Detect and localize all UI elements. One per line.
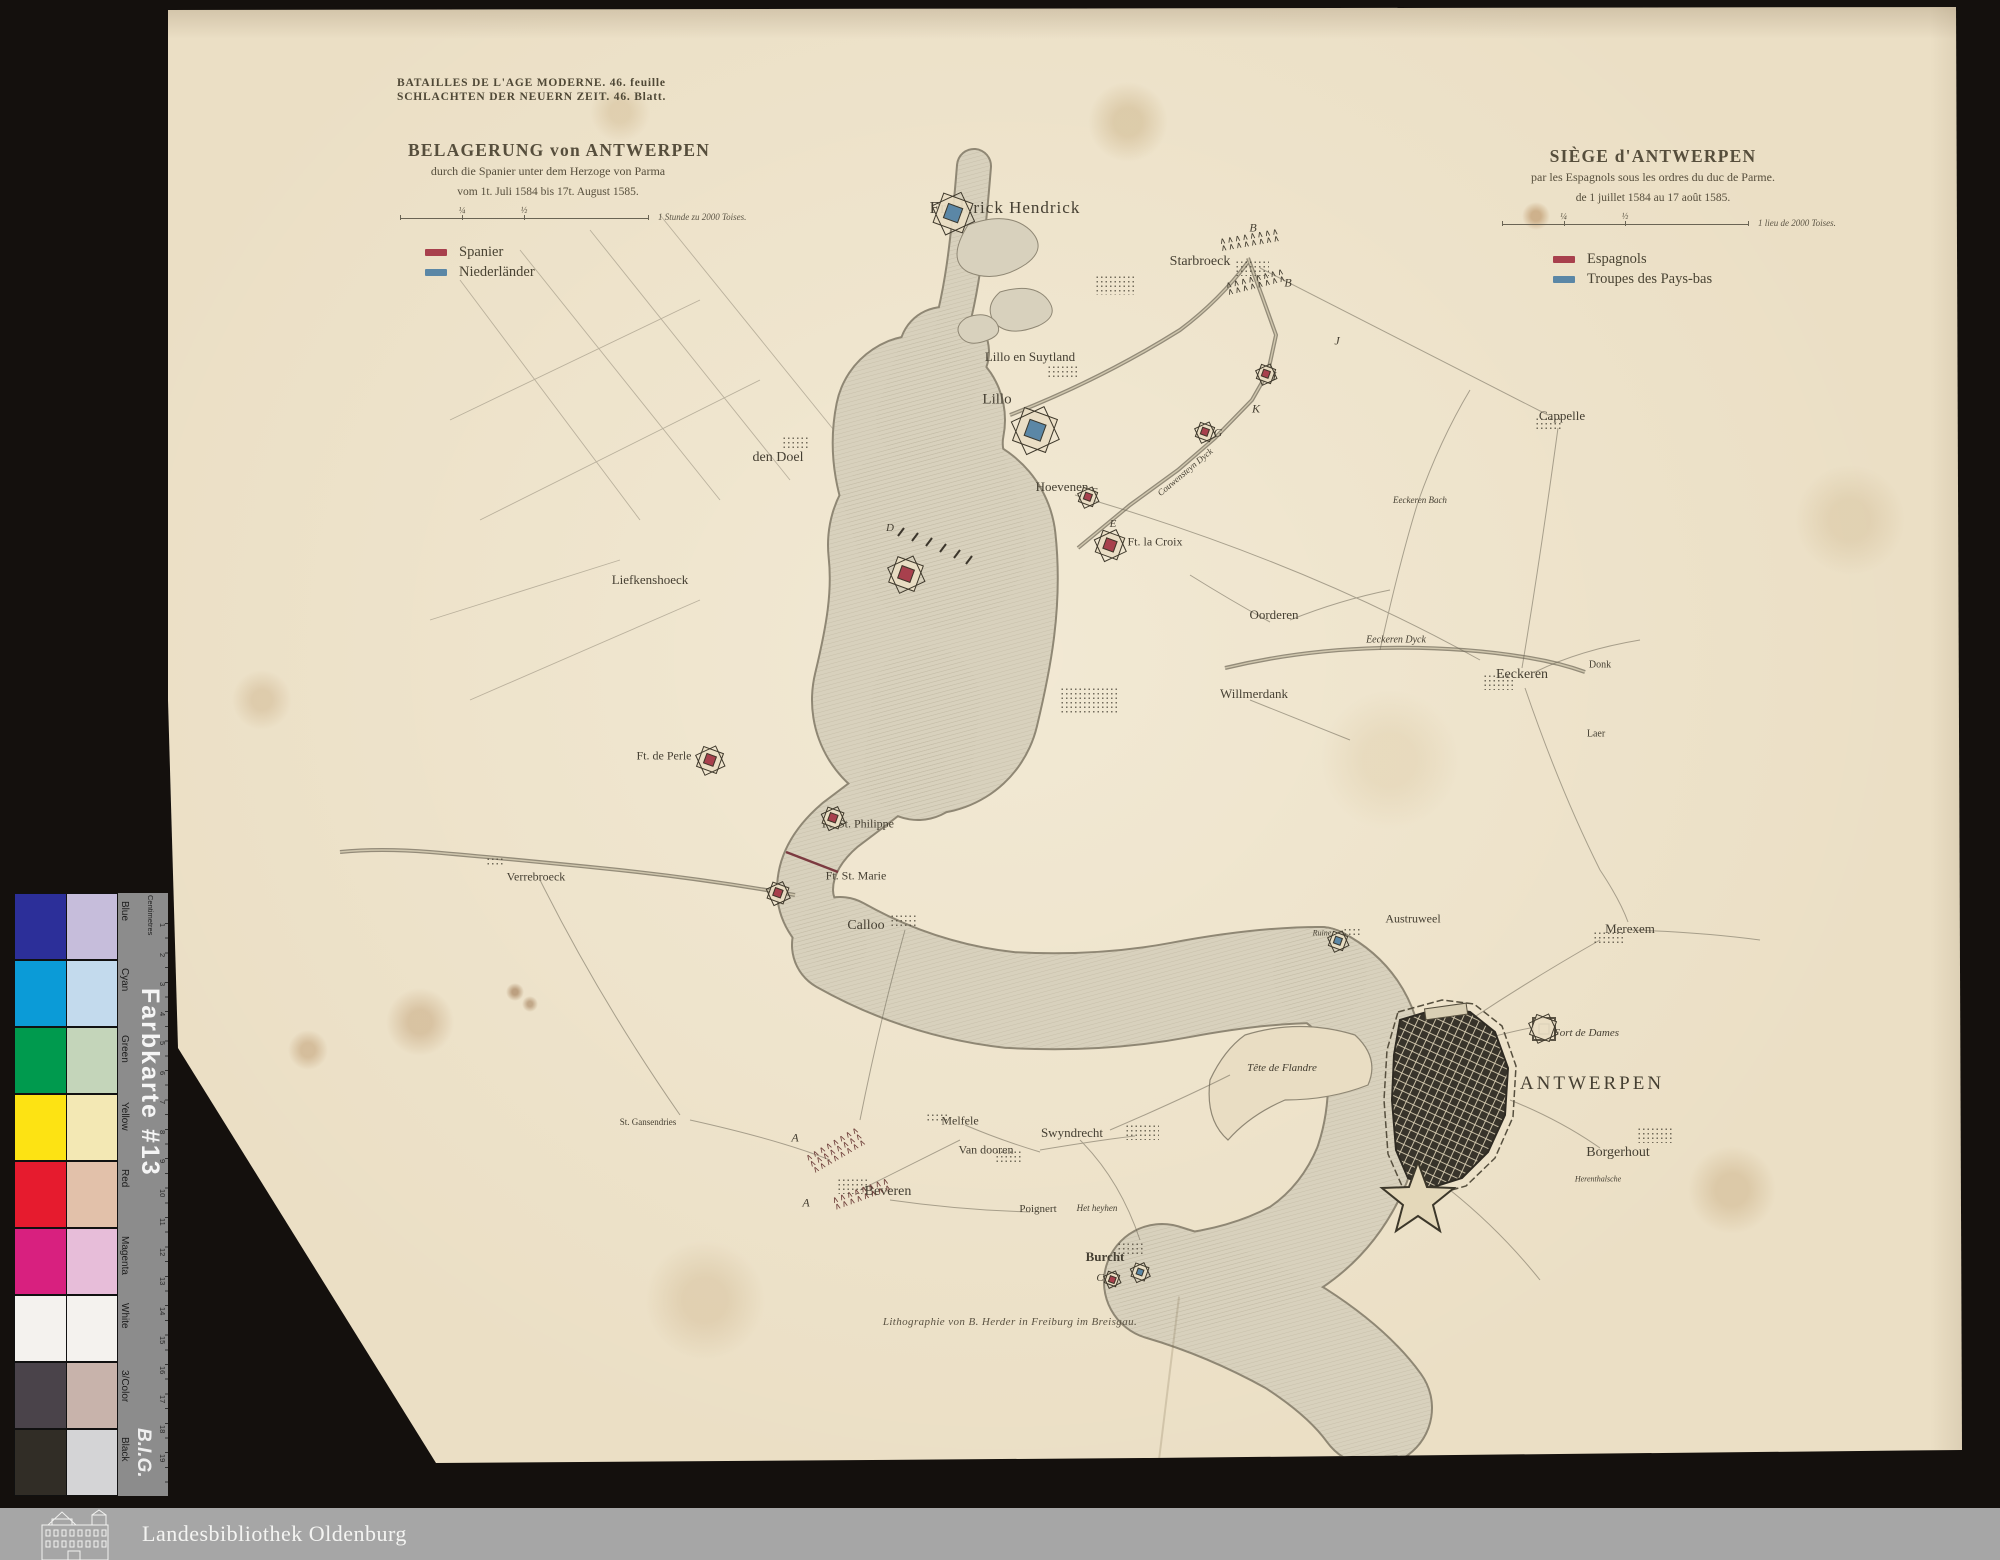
map-label: Starbroeck (1170, 254, 1231, 270)
library-building-icon (40, 1509, 126, 1560)
map-label: D (886, 522, 894, 534)
ruler-number: 11 (158, 1218, 167, 1226)
ruler-number: 14 (158, 1307, 167, 1315)
scale-tick (648, 215, 649, 220)
title-block-french: SIÈGE d'ANTWERPEN par les Espagnols sous… (1528, 146, 1778, 204)
village-dots (1060, 687, 1120, 713)
color-patch-tint (67, 1429, 118, 1496)
legend-label: Niederländer (459, 264, 535, 281)
ruler-caption: Centimetres (146, 895, 155, 935)
color-patch-solid (14, 1094, 67, 1161)
village-dots (1235, 260, 1269, 276)
spanish-color-swatch (425, 249, 447, 256)
scale-tick (1625, 221, 1626, 226)
village-dots (782, 436, 808, 448)
color-patch-tint (67, 1362, 118, 1429)
color-patch-solid (14, 960, 67, 1027)
map-label: Willmerdank (1220, 686, 1288, 702)
series-title: BATAILLES DE L'AGE MODERNE. 46. feuille … (397, 76, 666, 104)
scale-half-label: ½ (521, 205, 528, 215)
scale-caption: 1 lieu de 2000 Toises. (1758, 218, 1836, 228)
map-label: Swyndrecht (1041, 1125, 1103, 1141)
lithographer-imprint: Lithographie von B. Herder in Freiburg i… (883, 1316, 1137, 1328)
fort-core (1102, 537, 1118, 553)
series-title-fr: BATAILLES DE L'AGE MODERNE. 46. feuille (397, 76, 666, 90)
legend-row-spanish: Espagnols (1553, 249, 1712, 269)
ruler-number: 15 (158, 1336, 167, 1344)
village-dots (1593, 931, 1623, 945)
color-patch-solid (14, 1161, 67, 1228)
map-label: Eeckeren Bach (1393, 495, 1447, 505)
map-label: A (791, 1131, 798, 1146)
fort-core (1135, 1267, 1145, 1277)
scale-bar-german: ¼ ½ 1 Stunde zu 2000 Toises. (400, 212, 648, 222)
ruler-number: 12 (158, 1248, 167, 1256)
color-patch-tint (67, 1027, 118, 1094)
color-row-label: Black (119, 1437, 130, 1461)
color-calibration-card: Centimetres Farbkarte #13 B.I.G. BlueCya… (14, 893, 168, 1496)
ruler-number: 18 (158, 1425, 167, 1433)
ruler-number: 13 (158, 1277, 167, 1285)
color-patch-solid (14, 1429, 67, 1496)
legend-row-dutch: Troupes des Pays-bas (1553, 269, 1712, 289)
scale-tick (1748, 221, 1749, 226)
library-footer-bar: Landesbibliothek Oldenburg (0, 1508, 2000, 1560)
title-de-main: BELAGERUNG von ANTWERPEN (408, 140, 688, 161)
fort-core (1333, 936, 1344, 947)
river-hatching (805, 166, 1376, 1408)
map-label: den Doel (753, 450, 804, 466)
map-label: Liefkenshoeck (612, 572, 689, 588)
scale-tick (1502, 221, 1503, 226)
fort-core (703, 753, 717, 767)
color-patch-solid (14, 1027, 67, 1094)
color-card-row (14, 893, 118, 960)
village-dots (1637, 1127, 1673, 1143)
fort-core (1024, 419, 1047, 442)
map-label: Lillo (982, 392, 1011, 409)
map-label: Borgerhout (1586, 1145, 1650, 1161)
village-dots (1047, 365, 1077, 379)
card-label-strip: Centimetres Farbkarte #13 B.I.G. BlueCya… (118, 893, 168, 1496)
title-block-german: BELAGERUNG von ANTWERPEN durch die Spani… (408, 140, 688, 198)
scale-caption: 1 Stunde zu 2000 Toises. (658, 212, 746, 222)
title-de-sub: durch die Spanier unter dem Herzoge von … (408, 164, 688, 179)
fort-core (1200, 427, 1211, 438)
fort-core (943, 203, 963, 223)
map-label: ANTWERPEN (1520, 1073, 1664, 1095)
scale-tick (400, 215, 401, 220)
map-label: Tête de Flandre (1247, 1062, 1317, 1074)
card-title: Farbkarte #13 (135, 988, 164, 1177)
scale-half-label: ½ (1622, 211, 1629, 221)
legend-german: Spanier Niederländer (425, 242, 535, 282)
color-row-label: White (119, 1303, 130, 1329)
title-fr-main: SIÈGE d'ANTWERPEN (1528, 146, 1778, 167)
color-patch-solid (14, 893, 67, 960)
series-title-de: SCHLACHTEN DER NEUERN ZEIT. 46. Blatt. (397, 90, 666, 104)
village-dots (926, 1113, 948, 1123)
map-label: Het heyhen (1077, 1203, 1118, 1213)
village-dots (837, 1178, 867, 1194)
scale-quarter-label: ¼ (459, 205, 466, 215)
color-card-row (14, 960, 118, 1027)
fort-core (1261, 369, 1272, 380)
color-row-label: Green (119, 1035, 130, 1063)
village-dots (1343, 928, 1361, 937)
title-fr-dates: de 1 juillet 1584 au 17 août 1585. (1528, 192, 1778, 204)
village-dots (1117, 1242, 1143, 1254)
map-label: Ft. la Croix (1127, 535, 1182, 550)
map-label: K (1252, 402, 1260, 417)
color-row-label: Magenta (119, 1236, 130, 1275)
card-brand: B.I.G. (132, 1428, 154, 1478)
fort-core (897, 565, 915, 583)
map-label: Laer (1587, 729, 1605, 740)
color-patch-tint (67, 893, 118, 960)
legend-row-spanish: Spanier (425, 242, 535, 262)
color-row-label: Red (119, 1169, 130, 1187)
color-patch-tint (67, 1161, 118, 1228)
fort-core (772, 887, 784, 899)
village-dots (486, 857, 504, 867)
map-label: Poignert (1019, 1203, 1056, 1215)
map-label: Eeckeren Dyck (1366, 635, 1426, 646)
antwerp-city-blocks (1392, 1008, 1508, 1188)
color-card-row (14, 1295, 118, 1362)
scale-bar-french: ¼ ½ 1 lieu de 2000 Toises. (1502, 218, 1748, 228)
village-dots (1125, 1124, 1159, 1140)
ruler-number: 3 (158, 982, 167, 986)
village-dots (1535, 417, 1561, 431)
map-label: Oorderen (1249, 607, 1298, 623)
ruler-number: 5 (158, 1041, 167, 1045)
ruler-number: 8 (158, 1130, 167, 1134)
ruler-number: 16 (158, 1366, 167, 1374)
ruler-number: 6 (158, 1071, 167, 1075)
map-sheet: BATAILLES DE L'AGE MODERNE. 46. feuille … (0, 0, 2000, 1560)
ruler-number: 4 (158, 1012, 167, 1016)
map-label: A (802, 1196, 809, 1211)
village-dots (1483, 674, 1513, 690)
ruler-number: 19 (158, 1454, 167, 1462)
ruler-number: 1 (158, 923, 167, 927)
legend-label: Spanier (459, 244, 503, 261)
map-label: Herenthalsche (1575, 1175, 1621, 1184)
fort-core (827, 812, 839, 824)
legend-row-dutch: Niederländer (425, 262, 535, 282)
color-row-label: Blue (119, 901, 130, 921)
color-patch-tint (67, 1094, 118, 1161)
map-label: Verrebroeck (507, 870, 566, 885)
ruler-number: 9 (158, 1159, 167, 1163)
color-patch-solid (14, 1362, 67, 1429)
dutch-color-swatch (1553, 276, 1575, 283)
color-patch-tint (67, 960, 118, 1027)
color-card-row (14, 1094, 118, 1161)
legend-label: Espagnols (1587, 251, 1647, 268)
color-patch-solid (14, 1228, 67, 1295)
scale-quarter-label: ¼ (1560, 211, 1567, 221)
color-card-row (14, 1362, 118, 1429)
color-patch-columns (14, 893, 118, 1496)
map-label: St. Gansendries (620, 1117, 677, 1127)
ruler-number: 2 (158, 953, 167, 957)
color-patch-tint (67, 1295, 118, 1362)
map-label: Ft. St. Marie (826, 869, 887, 884)
map-label: Fort de Dames (1553, 1027, 1619, 1039)
village-dots (890, 914, 916, 926)
color-row-label: Cyan (119, 968, 130, 991)
title-fr-sub: par les Espagnols sous les ordres du duc… (1528, 170, 1778, 185)
scale-tick (1564, 221, 1565, 226)
title-de-dates: vom 1t. Juli 1584 bis 17t. August 1585. (408, 186, 688, 198)
dutch-color-swatch (425, 269, 447, 276)
legend-french: Espagnols Troupes des Pays-bas (1553, 249, 1712, 289)
map-label: Donk (1589, 660, 1611, 671)
scale-tick (462, 215, 463, 220)
scale-tick (524, 215, 525, 220)
color-card-row (14, 1228, 118, 1295)
map-label: J (1334, 334, 1339, 349)
map-label: Austruweel (1385, 912, 1440, 927)
color-card-row (14, 1027, 118, 1094)
ruler-number: 10 (158, 1189, 167, 1197)
color-patch-solid (14, 1295, 67, 1362)
color-row-label: 3/Color (119, 1370, 130, 1402)
ruler-number: 17 (158, 1395, 167, 1403)
scan-background: BATAILLES DE L'AGE MODERNE. 46. feuille … (0, 0, 2000, 1560)
library-name: Landesbibliothek Oldenburg (142, 1521, 407, 1547)
fort-core (1107, 1274, 1116, 1283)
color-row-label: Yellow (119, 1102, 130, 1131)
map-label: Calloo (847, 918, 884, 934)
ruler-number: 7 (158, 1100, 167, 1104)
village-dots (1095, 275, 1135, 295)
color-card-row (14, 1429, 118, 1496)
spanish-color-swatch (1553, 256, 1575, 263)
map-label: Ft. de Perle (637, 749, 692, 764)
color-patch-tint (67, 1228, 118, 1295)
fort-core (1083, 492, 1094, 503)
map-label: Lillo en Suytland (985, 349, 1075, 365)
village-dots (995, 1150, 1021, 1162)
legend-label: Troupes des Pays-bas (1587, 271, 1712, 288)
color-card-row (14, 1161, 118, 1228)
